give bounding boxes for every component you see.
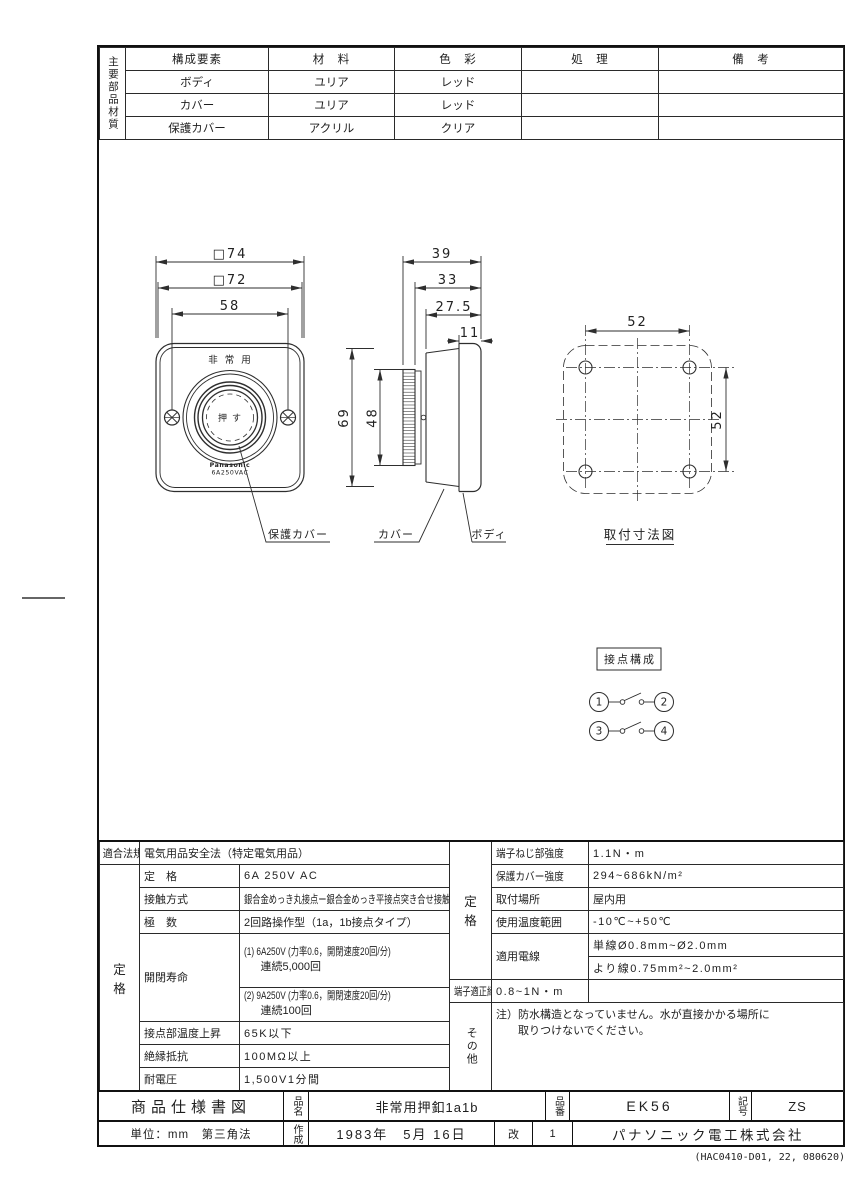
materials-header-remarks: 備 考 <box>659 48 844 71</box>
materials-header-component: 構成要素 <box>126 48 269 71</box>
row-value: 65K以下 <box>240 1021 450 1044</box>
spec-sheet-page: { "materials_table": { "side_label": "主要… <box>0 0 847 1200</box>
cell-material: ユリア <box>269 71 395 94</box>
mounting-view <box>556 325 734 545</box>
cell-remarks <box>659 117 844 140</box>
cell-treatment <box>522 117 659 140</box>
rating-group-label: 定格 <box>100 864 140 1091</box>
dim-mount-y: 52 <box>710 409 725 430</box>
dim-side-body: 11 <box>460 326 481 341</box>
front-view <box>156 256 304 492</box>
created-label: 作成 <box>284 1122 309 1145</box>
row-value: 1,500V1分間 <box>240 1067 450 1091</box>
revision-label: 改 <box>495 1122 533 1145</box>
doc-type: 商品仕様書図 <box>99 1092 284 1120</box>
dim-side-knob: 48 <box>366 407 381 428</box>
row-label: 使用温度範囲 <box>492 910 589 933</box>
row-label: 端子ねじ部強度 <box>492 841 589 864</box>
materials-row-protective-cover: 保護カバー アクリル クリア <box>100 117 844 140</box>
row-label: 開閉寿命 <box>140 933 240 1021</box>
terminal-4: 4 <box>661 726 668 738</box>
other-group-label: その他 <box>450 1002 492 1091</box>
units-projection: 単位：mm 第三角法 <box>99 1122 284 1145</box>
label-protective-cover: 保護カバー <box>268 527 328 541</box>
device-top-label: 非常用 <box>208 354 258 366</box>
terminal-1: 1 <box>596 697 603 709</box>
contact-config-title: 接点構成 <box>604 653 656 666</box>
screw-right-icon <box>281 410 296 425</box>
row-label: 極 数 <box>140 910 240 933</box>
technical-drawing: □74 □72 58 非常用 押す Panasonic 6A250VAC 69 … <box>99 139 843 840</box>
symbol-value: ZS <box>752 1092 843 1120</box>
dim-side-cover: 27.5 <box>436 300 473 315</box>
row-value: 100MΩ以上 <box>240 1044 450 1067</box>
side-view <box>346 256 493 492</box>
row-label: 保護カバー強度 <box>492 864 589 887</box>
cell-color: レッド <box>395 94 522 117</box>
product-number: EK56 <box>570 1092 730 1120</box>
drawing-frame: 主要部品材質 構成要素 材 料 色 彩 処 理 備 考 ボディ ユリア レッド … <box>97 45 845 1147</box>
law-label: 適合法規 <box>100 841 140 864</box>
cell-treatment <box>522 94 659 117</box>
materials-header-material: 材 料 <box>269 48 395 71</box>
row-value: 294~686kN/m² <box>589 864 844 887</box>
page-center-tick <box>22 597 65 599</box>
law-value: 電気用品安全法（特定電気用品） <box>140 841 450 864</box>
row-value: 単線Ø0.8mm~Ø2.0mm <box>589 933 844 956</box>
device-brand: Panasonic <box>210 462 251 469</box>
row-label: 取付場所 <box>492 887 589 910</box>
label-cover: カバー <box>378 528 414 541</box>
cell-material: アクリル <box>269 117 395 140</box>
materials-side-label: 主要部品材質 <box>100 48 126 140</box>
dim-front-outer: □74 <box>213 247 248 262</box>
row-value: -10℃~+50℃ <box>589 910 844 933</box>
row-value: (1) 6A250V (力率0.6，開閉速度20回/分) 連続5,000回 <box>240 933 450 987</box>
materials-table: 主要部品材質 構成要素 材 料 色 彩 処 理 備 考 ボディ ユリア レッド … <box>99 47 844 140</box>
rating-group-label: 定格 <box>450 841 492 979</box>
cell-remarks <box>659 71 844 94</box>
row-label: 耐電圧 <box>140 1067 240 1091</box>
product-number-label: 品番 <box>546 1092 570 1120</box>
device-rating: 6A250VAC <box>211 470 248 477</box>
symbol-label: 記号 <box>730 1092 752 1120</box>
materials-row-body: ボディ ユリア レッド <box>100 71 844 94</box>
device-button-label: 押す <box>218 412 246 424</box>
dim-side-height: 69 <box>337 407 352 428</box>
dim-side-mid: 33 <box>438 273 459 288</box>
cell-component: 保護カバー <box>126 117 269 140</box>
row-label: 定 格 <box>140 864 240 887</box>
spec-table-right: 定格 端子ねじ部強度 1.1N・m 保護カバー強度 294~686kN/m² 取… <box>449 840 844 1092</box>
dim-mount-x: 52 <box>627 315 648 330</box>
title-block: 商品仕様書図 品名 非常用押釦1a1b 品番 EK56 記号 ZS 単位：mm … <box>99 1090 843 1145</box>
spec-table-left: 適合法規 電気用品安全法（特定電気用品） 定格 定 格 6A 250V AC 接… <box>99 840 450 1092</box>
row-value: 1.1N・m <box>589 841 844 864</box>
company-name: パナソニック電工株式会社 <box>573 1122 843 1145</box>
product-name-label: 品名 <box>284 1092 309 1120</box>
cell-component: ボディ <box>126 71 269 94</box>
dim-side-total: 39 <box>432 247 453 262</box>
materials-row-cover: カバー ユリア レッド <box>100 94 844 117</box>
screw-left-icon <box>165 410 180 425</box>
row-value: 屋内用 <box>589 887 844 910</box>
row-value: 0.8~1N・m <box>492 979 589 1002</box>
cell-color: レッド <box>395 71 522 94</box>
materials-header-treatment: 処 理 <box>522 48 659 71</box>
created-date: 1983年 5月 16日 <box>309 1122 495 1145</box>
cell-material: ユリア <box>269 94 395 117</box>
row-label: 端子適正締付トルク <box>450 979 492 1002</box>
terminal-2: 2 <box>661 697 668 709</box>
row-value: 6A 250V AC <box>240 864 450 887</box>
cell-component: カバー <box>126 94 269 117</box>
row-label: 接点部温度上昇 <box>140 1021 240 1044</box>
row-label: 接触方式 <box>140 887 240 910</box>
cell-remarks <box>659 94 844 117</box>
materials-header-color: 色 彩 <box>395 48 522 71</box>
row-label: 適用電線 <box>492 933 589 979</box>
label-body: ボディ <box>471 527 506 541</box>
row-value: より線0.75mm²~2.0mm² <box>589 956 844 979</box>
terminal-3: 3 <box>596 726 603 738</box>
row-value: 2回路操作型（1a，1b接点タイプ） <box>240 910 450 933</box>
cell-treatment <box>522 71 659 94</box>
document-code: (HAC0410-D01, 22, 080620) <box>540 1152 845 1163</box>
dim-front-screws: 58 <box>220 299 241 314</box>
cell-color: クリア <box>395 117 522 140</box>
dim-front-inner: □72 <box>213 273 248 288</box>
row-value: (2) 9A250V (力率0.6，開閉速度20回/分) 連続100回 <box>240 987 450 1021</box>
row-value: 銀合金めっき丸接点ー銀合金めっき平接点突き合せ接触 <box>240 887 450 910</box>
waterproof-note: 注）防水構造となっていません。水が直接かかる場所に 取りつけないでください。 <box>492 1002 844 1091</box>
revision-value: 1 <box>533 1122 573 1145</box>
row-label: 絶縁抵抗 <box>140 1044 240 1067</box>
mounting-view-title: 取付寸法図 <box>604 527 677 542</box>
product-name: 非常用押釦1a1b <box>309 1092 546 1120</box>
